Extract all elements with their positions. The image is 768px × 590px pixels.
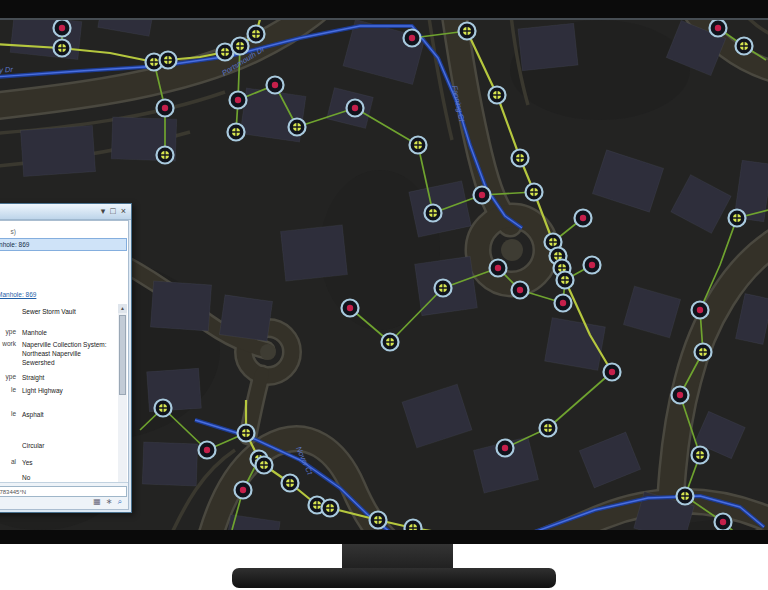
manhole-node[interactable] bbox=[512, 150, 529, 167]
inlet-center bbox=[517, 287, 523, 293]
manhole-node[interactable] bbox=[729, 210, 746, 227]
manhole-node[interactable] bbox=[54, 40, 71, 57]
inlet-center bbox=[235, 97, 241, 103]
manhole-node[interactable] bbox=[557, 272, 574, 289]
inlet-center bbox=[409, 35, 415, 41]
tree-selected-item[interactable]: Manhole: 869 bbox=[0, 238, 127, 251]
building-footprint bbox=[518, 23, 578, 71]
inlet-node[interactable] bbox=[672, 387, 689, 404]
inlet-center bbox=[347, 305, 353, 311]
inlet-node[interactable] bbox=[575, 210, 592, 227]
attribute-row: Sewer Storm Vault bbox=[0, 307, 118, 316]
culdesac-island bbox=[501, 239, 523, 261]
building-footprint bbox=[150, 281, 211, 331]
inlet-node[interactable] bbox=[497, 440, 514, 457]
manhole-node[interactable] bbox=[256, 457, 273, 474]
manhole-node[interactable] bbox=[540, 420, 557, 437]
manhole-node[interactable] bbox=[489, 87, 506, 104]
inlet-node[interactable] bbox=[235, 482, 252, 499]
pages-icon[interactable]: ▦ bbox=[93, 497, 101, 507]
building-footprint bbox=[281, 225, 348, 281]
inlet-center bbox=[580, 215, 586, 221]
manhole-node[interactable] bbox=[692, 447, 709, 464]
manhole-node[interactable] bbox=[425, 205, 442, 222]
identify-window: ▾ □ × s) Manhole: 869 Manhole: 869 Sewer… bbox=[0, 203, 132, 513]
inlet-center bbox=[609, 369, 615, 375]
inlet-node[interactable] bbox=[490, 260, 507, 277]
window-close-icon[interactable]: × bbox=[121, 205, 126, 218]
monitor-bezel-bottom bbox=[0, 530, 768, 544]
feature-header-link[interactable]: Manhole: 869 bbox=[0, 291, 36, 298]
manhole-node[interactable] bbox=[248, 26, 265, 43]
building-footprint bbox=[20, 126, 95, 177]
inlet-center bbox=[352, 105, 358, 111]
manhole-node[interactable] bbox=[232, 38, 249, 55]
identify-window-body: s) Manhole: 869 Manhole: 869 Sewer Storm… bbox=[0, 220, 129, 510]
attribute-row: Circular bbox=[0, 441, 118, 450]
manhole-node[interactable] bbox=[435, 280, 452, 297]
manhole-node[interactable] bbox=[370, 512, 387, 529]
flash-icon[interactable]: ∗ bbox=[106, 497, 113, 507]
inlet-center bbox=[715, 25, 721, 31]
building bbox=[219, 295, 272, 341]
inlet-center bbox=[589, 262, 595, 268]
building bbox=[518, 23, 578, 71]
inlet-node[interactable] bbox=[512, 282, 529, 299]
inlet-node[interactable] bbox=[54, 20, 71, 37]
inlet-node[interactable] bbox=[199, 442, 216, 459]
manhole-node[interactable] bbox=[228, 124, 245, 141]
scroll-up-icon[interactable]: ▲ bbox=[118, 304, 127, 313]
monitor-bezel-top bbox=[0, 0, 768, 20]
inlet-center bbox=[59, 25, 65, 31]
inlet-node[interactable] bbox=[157, 100, 174, 117]
attribute-scrollbar[interactable]: ▲ ▼ bbox=[118, 304, 127, 501]
inlet-center bbox=[495, 265, 501, 271]
attribute-row: work Naperville Collection System: North… bbox=[0, 340, 118, 367]
inlet-center bbox=[479, 192, 485, 198]
identify-window-titlebar[interactable]: ▾ □ × bbox=[0, 204, 131, 220]
tree-parent-item[interactable]: s) bbox=[0, 228, 16, 235]
attribute-row: le Light Highway bbox=[0, 386, 118, 395]
inlet-center bbox=[720, 519, 726, 525]
monitor-screen: Westerly DrPortsmouth DrFanning CtNover … bbox=[0, 20, 768, 530]
identify-statusbar: 88.138932°W 41.783445°N ▦ ∗ ⌕ bbox=[0, 482, 128, 509]
attribute-row: No bbox=[0, 473, 118, 482]
inlet-center bbox=[560, 300, 566, 306]
inlet-node[interactable] bbox=[342, 300, 359, 317]
inlet-node[interactable] bbox=[347, 100, 364, 117]
attribute-row: al Yes bbox=[0, 458, 118, 467]
inlet-center bbox=[502, 445, 508, 451]
inlet-node[interactable] bbox=[710, 20, 727, 37]
building bbox=[142, 442, 197, 486]
culdesac-island bbox=[260, 344, 276, 360]
inlet-node[interactable] bbox=[715, 514, 732, 531]
window-float-icon[interactable]: □ bbox=[110, 205, 115, 218]
manhole-node[interactable] bbox=[736, 38, 753, 55]
building-footprint bbox=[142, 442, 197, 486]
attribute-row: le Asphalt bbox=[0, 410, 118, 419]
inlet-node[interactable] bbox=[584, 257, 601, 274]
inlet-center bbox=[272, 82, 278, 88]
manhole-node[interactable] bbox=[677, 488, 694, 505]
scroll-thumb[interactable] bbox=[119, 315, 126, 395]
manhole-node[interactable] bbox=[160, 52, 177, 69]
inlet-center bbox=[240, 487, 246, 493]
inlet-node[interactable] bbox=[404, 30, 421, 47]
manhole-node[interactable] bbox=[155, 400, 172, 417]
manhole-node[interactable] bbox=[322, 500, 339, 517]
monitor-stand-base bbox=[232, 568, 556, 588]
manhole-node[interactable] bbox=[282, 475, 299, 492]
inlet-node[interactable] bbox=[604, 364, 621, 381]
inlet-center bbox=[677, 392, 683, 398]
manhole-node[interactable] bbox=[157, 147, 174, 164]
manhole-node[interactable] bbox=[410, 137, 427, 154]
building bbox=[150, 281, 211, 331]
magnifier-icon[interactable]: ⌕ bbox=[118, 497, 122, 507]
inlet-node[interactable] bbox=[692, 302, 709, 319]
window-dropdown-icon[interactable]: ▾ bbox=[101, 205, 106, 218]
manhole-node[interactable] bbox=[459, 23, 476, 40]
manhole-node[interactable] bbox=[405, 520, 422, 531]
building bbox=[281, 225, 348, 281]
inlet-node[interactable] bbox=[267, 77, 284, 94]
attribute-table: Sewer Storm Vault ype Manhole work Naper… bbox=[0, 304, 118, 482]
manhole-node[interactable] bbox=[289, 119, 306, 136]
inlet-center bbox=[204, 447, 210, 453]
inlet-center bbox=[697, 307, 703, 313]
manhole-node[interactable] bbox=[382, 334, 399, 351]
inlet-node[interactable] bbox=[230, 92, 247, 109]
building-footprint bbox=[219, 295, 272, 341]
inlet-center bbox=[162, 105, 168, 111]
attribute-row: ype Straight bbox=[0, 373, 118, 382]
manhole-node[interactable] bbox=[526, 184, 543, 201]
coordinates-field[interactable]: 88.138932°W 41.783445°N bbox=[0, 486, 127, 497]
inlet-node[interactable] bbox=[474, 187, 491, 204]
inlet-node[interactable] bbox=[555, 295, 572, 312]
manhole-node[interactable] bbox=[695, 344, 712, 361]
tree-selected-label: Manhole: 869 bbox=[0, 241, 29, 248]
attribute-row: ype Manhole bbox=[0, 328, 118, 337]
manhole-node[interactable] bbox=[238, 425, 255, 442]
building bbox=[20, 126, 95, 177]
